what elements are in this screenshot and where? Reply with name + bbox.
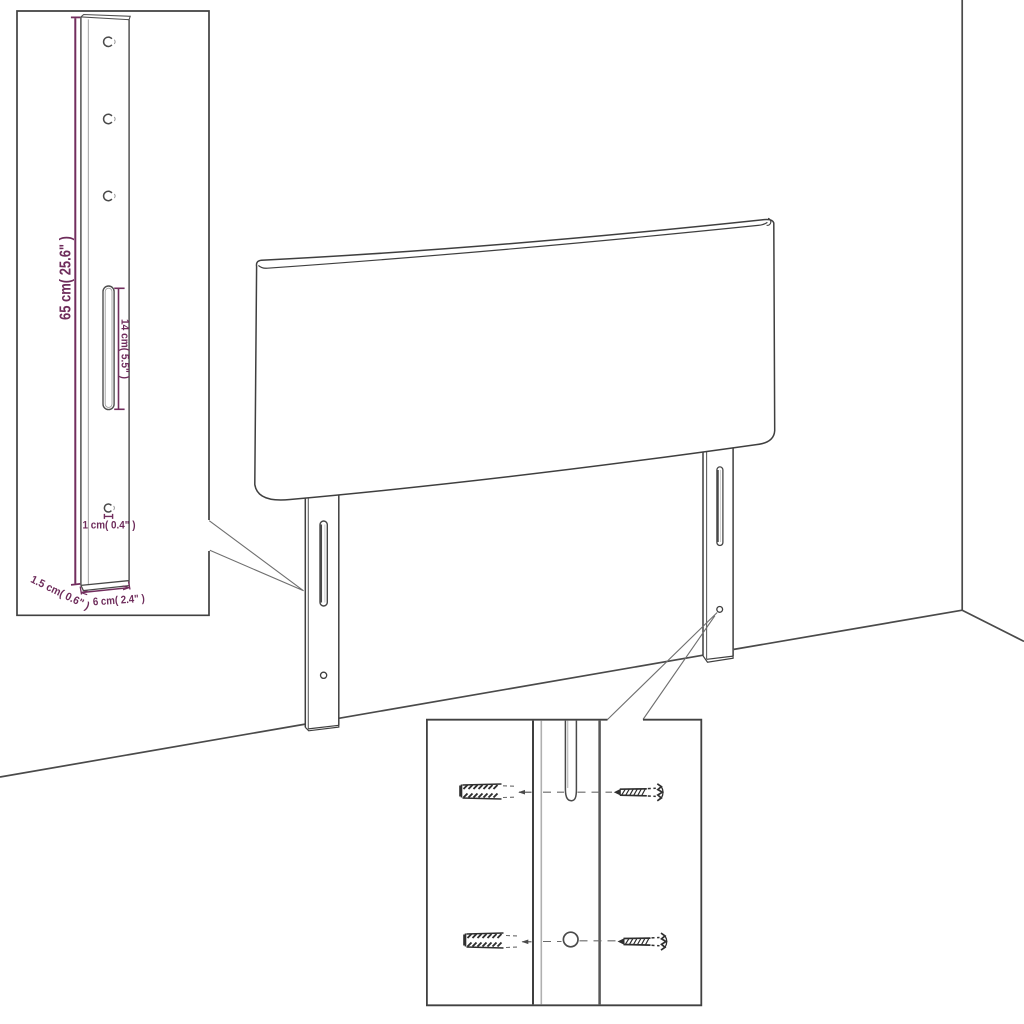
svg-text:1 cm( 0.4" ): 1 cm( 0.4" ): [83, 520, 136, 532]
svg-text:14 cm( 5.5" ): 14 cm( 5.5" ): [119, 319, 131, 379]
svg-text:65 cm( 25.6" ): 65 cm( 25.6" ): [57, 236, 74, 320]
